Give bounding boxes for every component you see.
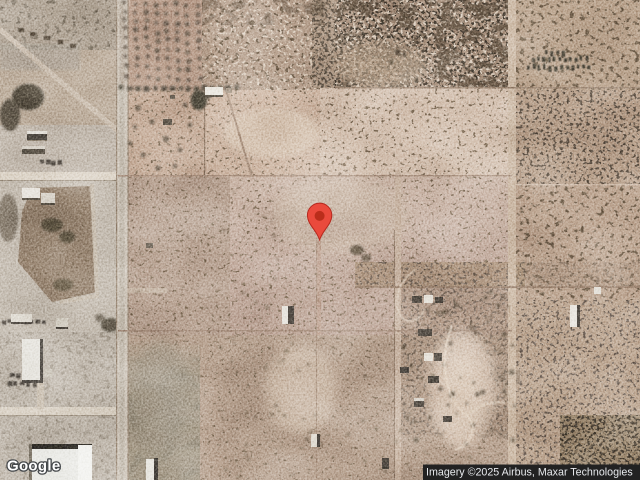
svg-text:Imagery ©2025 Airbus, Maxar Te: Imagery ©2025 Airbus, Maxar Technologies (426, 467, 633, 479)
svg-text:Google: Google (7, 458, 60, 475)
